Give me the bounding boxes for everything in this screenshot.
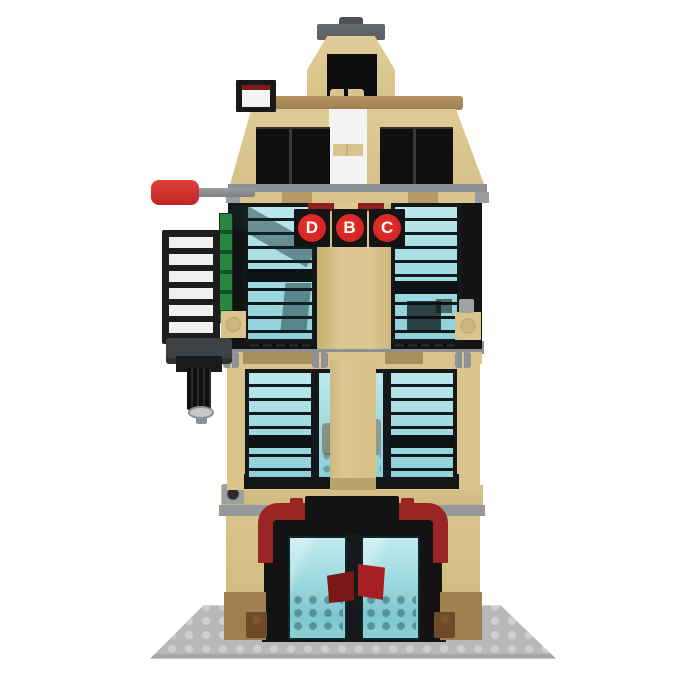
center-pillar-foot [330,478,376,490]
window-2f-left [245,369,315,481]
door-stud-texture [365,593,416,635]
dbc-sign-tile: C [369,209,405,247]
dbc-sign-tile: D [294,209,330,247]
lego-dbc-building-photo: THE DBC D [0,0,700,700]
lever-shaft [197,188,255,197]
dark-tan-brick [385,352,423,364]
brown-brick-right [434,612,455,638]
connector-pins [312,352,328,368]
dbc-sign-tile: B [332,209,368,247]
dbc-letter-c: C [373,214,401,242]
red-lever-grip [151,180,199,205]
dark-tan-brick [282,192,312,203]
gray-pin [459,299,474,313]
interior-shadow [280,283,311,331]
dark-tan-brick [408,192,438,203]
billboard-blank-panel [242,90,270,107]
tan-stud-brick-left [221,311,246,338]
green-trans-panel [219,213,233,323]
attic-window-right [380,127,453,185]
window-shade-bar [390,435,454,448]
window-shade-bar [394,281,458,294]
cornice-end-cap [475,192,489,203]
hanging-hose [187,368,211,410]
door-handle-left [327,571,354,603]
ladder-rungs [169,237,213,337]
arch-ridge-left [290,498,303,507]
window-shade-bar [248,435,312,448]
tan-stud-brick-right [455,312,481,340]
dbc-letter-b: B [336,214,364,242]
roof-strip-studs [333,144,363,156]
window-blinds [391,373,453,477]
arch-ridge-right [401,498,414,507]
brown-brick-left [246,612,267,638]
window-shade-bar [247,269,313,282]
fire-escape-ladder [162,230,220,344]
roof-ledge [243,96,463,110]
window-2f-right [387,369,457,481]
interior-monitor [436,299,452,313]
dark-tan-brick [243,352,315,364]
connector-pins [455,352,471,368]
window-blinds [249,373,311,477]
dbc-letter-d: D [298,214,326,242]
dbc-sign: D B C [294,209,405,247]
door-handle-right [358,564,385,600]
entrance-sign-tile: THE DBC [305,496,399,526]
hose-nozzle-tip [196,417,207,424]
second-floor-center-pillar [330,360,376,490]
roof-cornice-tan [226,192,489,203]
attic-window-left [256,127,330,185]
